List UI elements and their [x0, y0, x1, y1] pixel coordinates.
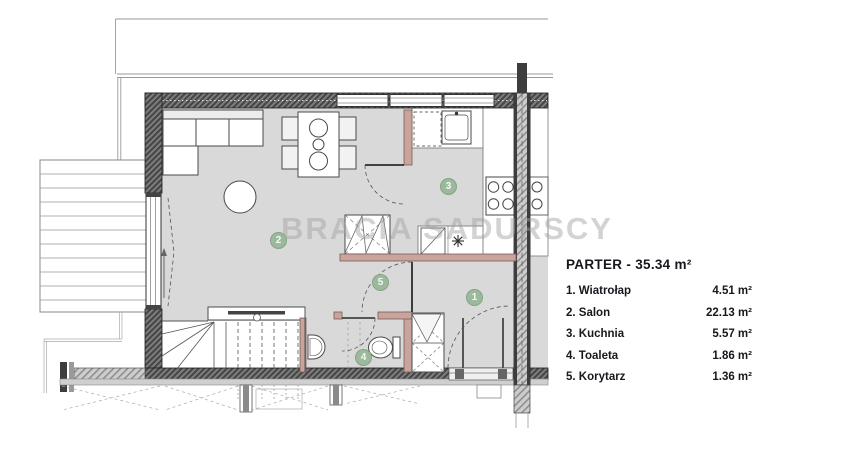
coffee-table	[224, 181, 256, 213]
legend-row-salon: 2. Salon 22.13 m²	[566, 303, 752, 325]
room-badge-4-toaleta: 4	[355, 349, 372, 366]
legend-row-korytarz: 5. Korytarz 1.36 m²	[566, 367, 752, 389]
legend-row-kuchnia: 3. Kuchnia 5.57 m²	[566, 324, 752, 346]
room-label: 5. Korytarz	[566, 367, 625, 389]
legend: PARTER - 35.34 m² 1. Wiatrołap 4.51 m² 2…	[566, 257, 752, 389]
room-label: 4. Toaleta	[566, 346, 618, 368]
top-windows	[337, 95, 494, 107]
room-badge-1-wiatrolap: 1	[466, 289, 483, 306]
room-area: 1.86 m²	[712, 346, 752, 368]
lower-level-marks	[62, 385, 420, 412]
room-area: 5.57 m²	[712, 324, 752, 346]
room-badge-3-kuchnia: 3	[440, 178, 457, 195]
room-badge-5-korytarz: 5	[372, 274, 389, 291]
room-label: 3. Kuchnia	[566, 324, 624, 346]
room-area: 1.36 m²	[712, 367, 752, 389]
legend-row-toaleta: 4. Toaleta 1.86 m²	[566, 346, 752, 368]
legend-title: PARTER - 35.34 m²	[566, 257, 752, 272]
toilet-wc	[369, 337, 401, 358]
room-badge-2-salon: 2	[270, 232, 287, 249]
terrace-deck	[40, 160, 150, 312]
room-label: 2. Salon	[566, 303, 610, 325]
room-area: 22.13 m²	[706, 303, 752, 325]
legend-row-wiatrolap: 1. Wiatrołap 4.51 m²	[566, 281, 752, 303]
stove	[486, 177, 516, 215]
tv-cabinet	[208, 307, 305, 321]
watermark: BRACIA SADURSCY	[281, 211, 613, 247]
entry-closet	[412, 313, 444, 372]
appliance-slot-dashed	[414, 112, 441, 146]
kitchen-sink	[442, 111, 471, 144]
floorplan-page: BRACIA SADURSCY 1 2 3 4 5 PARTER - 35.34…	[0, 0, 860, 449]
room-area: 4.51 m²	[712, 281, 752, 303]
room-label: 1. Wiatrołap	[566, 281, 631, 303]
